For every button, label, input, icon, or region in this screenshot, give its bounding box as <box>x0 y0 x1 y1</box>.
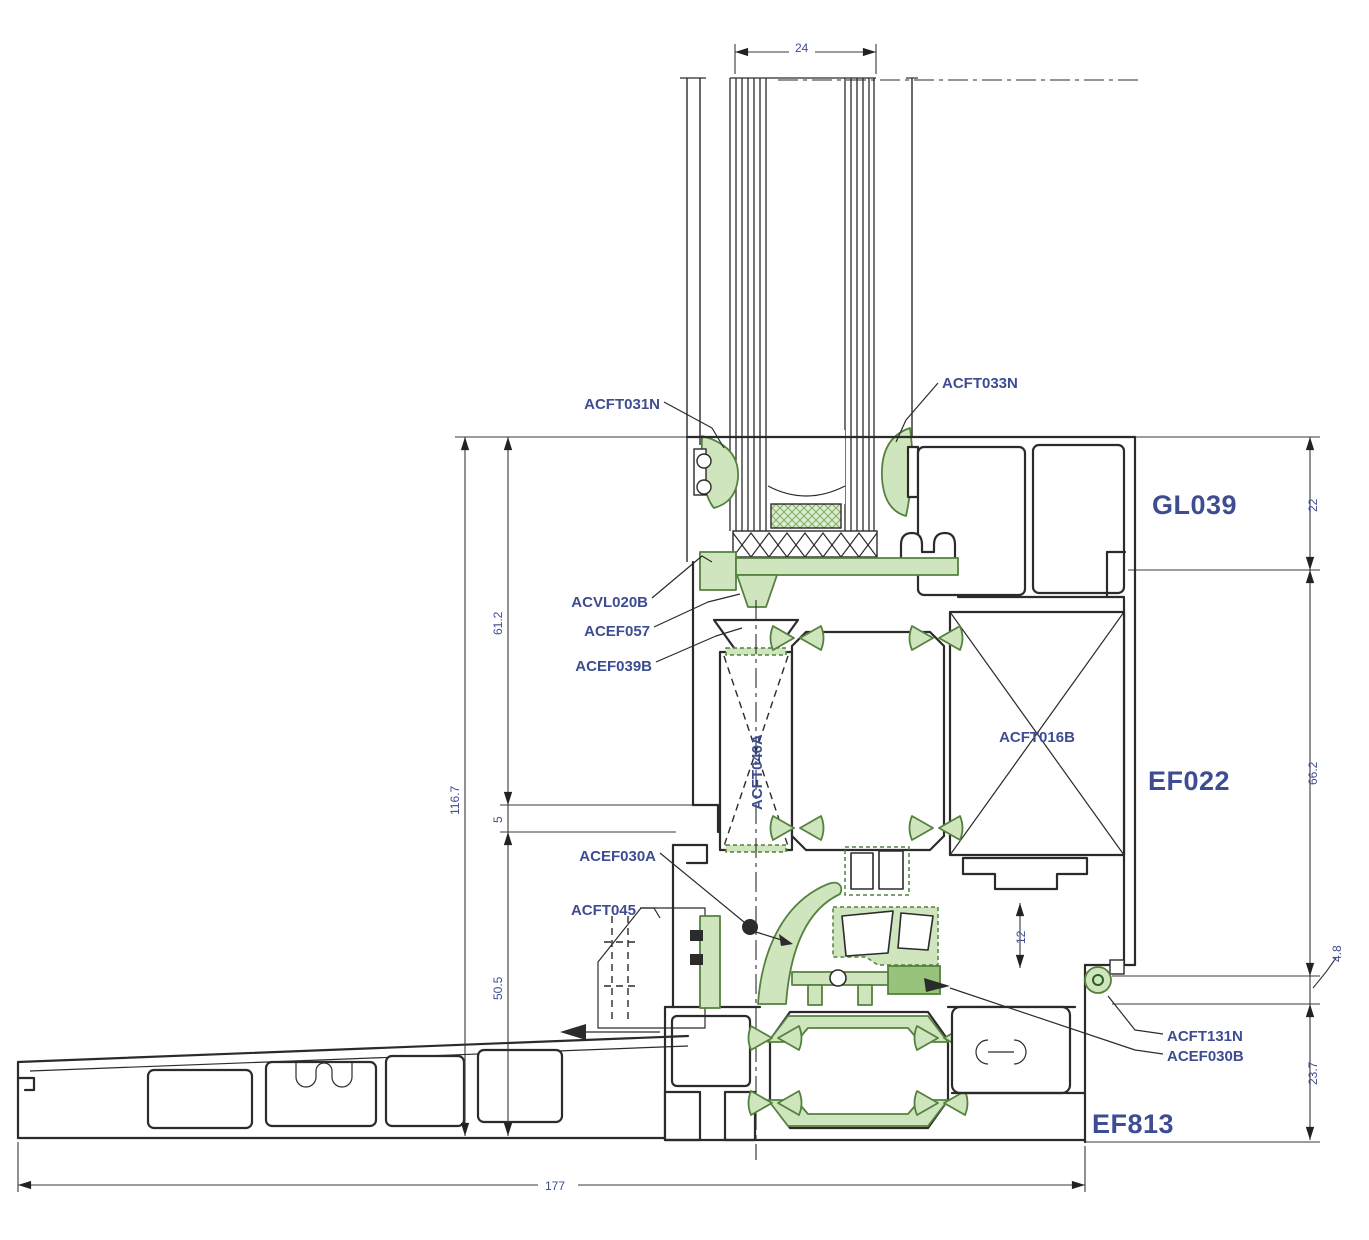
dim-116-7: 116.7 <box>448 786 462 815</box>
label-gl039: GL039 <box>1152 490 1237 520</box>
dim-5: 5 <box>491 816 505 823</box>
sill-profile <box>18 1036 688 1138</box>
label-rotated-part: ACFT040A <box>749 734 766 810</box>
bottom-tab <box>963 858 1087 889</box>
dim-4-8: 4.8 <box>1330 945 1344 962</box>
dim-22: 22 <box>1306 498 1320 512</box>
label-acef057: ACEF057 <box>584 623 650 640</box>
dim-61-2: 61.2 <box>491 611 505 635</box>
dim-50-5: 50.5 <box>491 976 505 1000</box>
dim-12: 12 <box>1014 930 1028 944</box>
label-acef030a: ACEF030A <box>579 848 656 865</box>
label-acft131n: ACFT131N <box>1167 1028 1243 1045</box>
label-acef030b: ACEF030B <box>1167 1048 1244 1065</box>
label-ef022: EF022 <box>1148 766 1230 796</box>
central-gasket-assembly <box>758 847 950 1005</box>
glass-cavity <box>768 430 845 504</box>
setting-block <box>771 504 841 528</box>
dim-23-7: 23.7 <box>1306 1061 1320 1085</box>
bottom-frame-profile <box>665 1007 1085 1140</box>
drawing-page: 24 116.7 61.2 5 50.5 22 66.2 4.8 23.7 12… <box>0 0 1369 1240</box>
label-acvl020b: ACVL020B <box>571 594 648 611</box>
label-acft031n: ACFT031N <box>584 396 660 413</box>
cross-section-drawing: 24 116.7 61.2 5 50.5 22 66.2 4.8 23.7 12… <box>0 0 1369 1240</box>
dim-66-2: 66.2 <box>1306 761 1320 785</box>
label-acef039b: ACEF039B <box>575 658 652 675</box>
label-acft045: ACFT045 <box>571 902 636 919</box>
central-chamber <box>792 632 944 850</box>
label-acft033n: ACFT033N <box>942 375 1018 392</box>
label-ef813: EF813 <box>1092 1109 1174 1139</box>
dim-177: 177 <box>545 1179 565 1193</box>
gasket-acft131n <box>1085 967 1111 993</box>
label-acft016b: ACFT016B <box>999 729 1075 746</box>
gasket-acft031n <box>702 436 738 508</box>
dim-glass-width: 24 <box>795 41 809 55</box>
